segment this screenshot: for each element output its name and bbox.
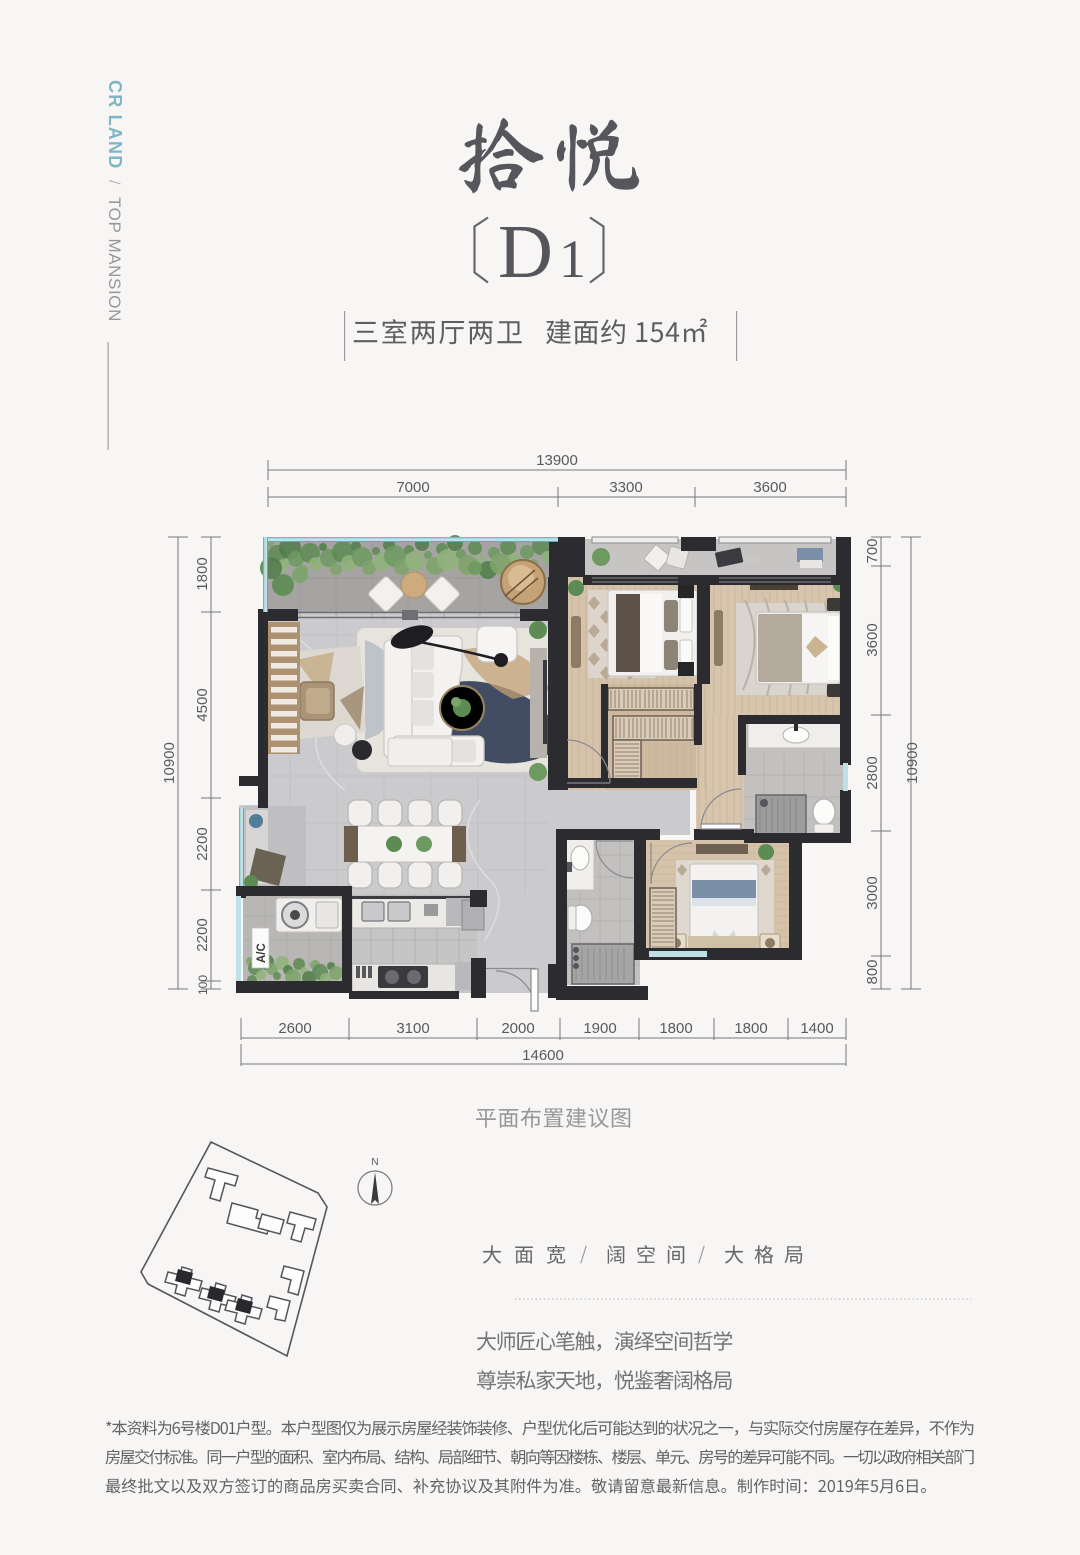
svg-text:2800: 2800 [864,756,881,789]
svg-text:3100: 3100 [396,1020,429,1037]
svg-text:3600: 3600 [864,623,881,656]
svg-text:4500: 4500 [194,688,211,721]
svg-text:CR LAND: CR LAND [105,80,125,169]
svg-text:10900: 10900 [904,742,921,784]
svg-text:1: 1 [559,229,586,289]
svg-text:2000: 2000 [501,1020,534,1037]
svg-text:14600: 14600 [522,1047,564,1064]
svg-text:TOP MANSION: TOP MANSION [105,197,124,322]
svg-text:3600: 3600 [753,479,786,496]
svg-text:3000: 3000 [864,876,881,909]
svg-text:2200: 2200 [194,918,211,951]
svg-text:1800: 1800 [194,557,211,590]
svg-text:10900: 10900 [161,742,178,784]
svg-text:1800: 1800 [659,1020,692,1037]
svg-text:2200: 2200 [194,827,211,860]
svg-text:7000: 7000 [396,479,429,496]
svg-text:A/C: A/C [256,943,268,963]
svg-text:3300: 3300 [609,479,642,496]
svg-text:2600: 2600 [278,1020,311,1037]
svg-text:700: 700 [864,538,881,563]
svg-text:D: D [498,210,553,294]
svg-text:800: 800 [864,959,881,984]
svg-text:1900: 1900 [583,1020,616,1037]
svg-text:N: N [371,1157,378,1168]
svg-text:1800: 1800 [734,1020,767,1037]
svg-text:1400: 1400 [800,1020,833,1037]
svg-text:13900: 13900 [536,452,578,469]
svg-text:/: / [105,180,122,185]
svg-text:100: 100 [196,975,210,995]
